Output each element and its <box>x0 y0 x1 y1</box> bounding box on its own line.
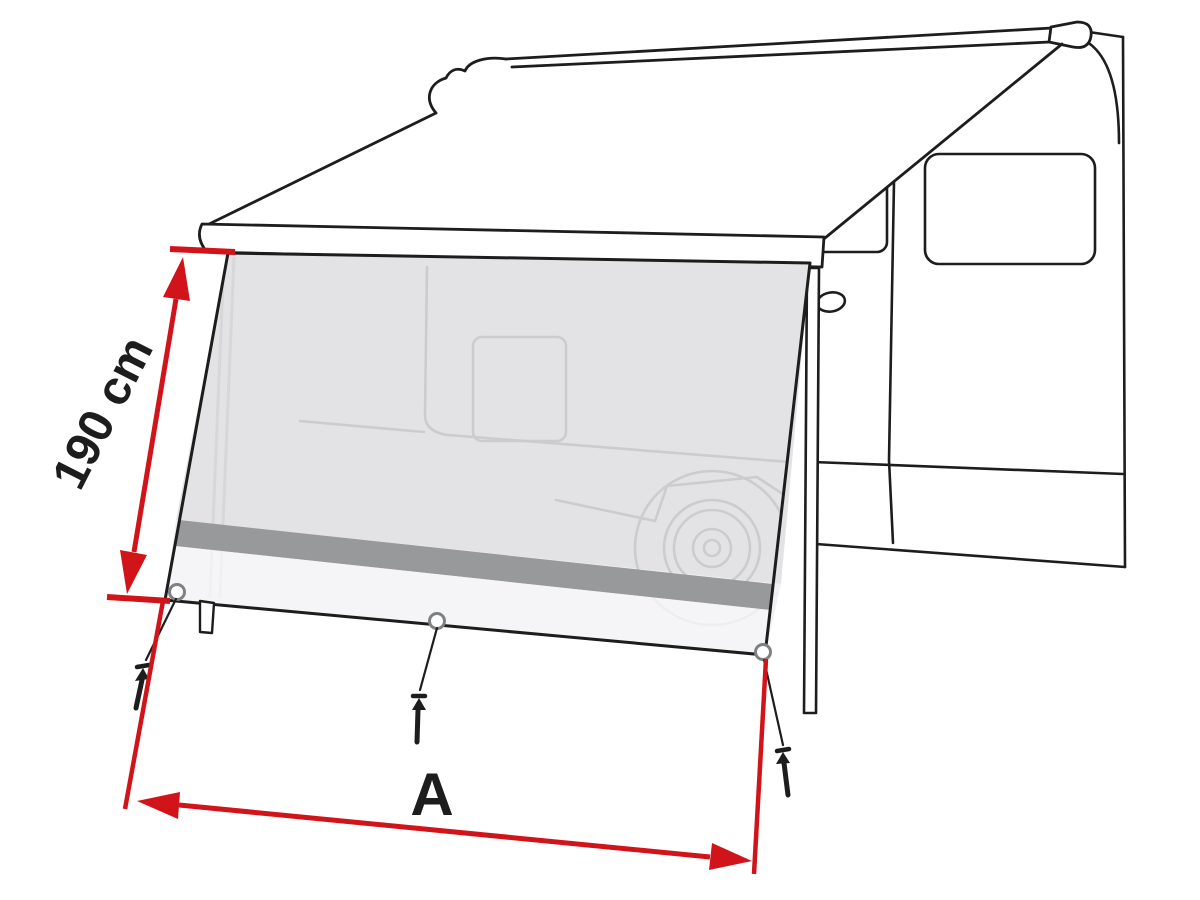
width-extension-line-right <box>754 659 766 874</box>
van-rear-corner-seam <box>1090 44 1119 143</box>
roller-end-cap <box>1049 22 1091 48</box>
guy-line-middle <box>420 628 437 690</box>
awning-diagram: 190 cm A <box>0 0 1200 900</box>
height-arrow-shaft <box>134 299 176 552</box>
van-right-edge <box>1123 37 1125 567</box>
grommet-middle <box>430 614 445 629</box>
width-arrowhead-left <box>137 792 180 819</box>
van-bottom-edge <box>816 544 1125 567</box>
height-arrowhead-top <box>163 257 190 301</box>
height-extension-tick-bottom <box>107 597 170 601</box>
grommet-left <box>170 585 185 600</box>
van-door-edge <box>889 182 894 543</box>
van-rear-window <box>925 154 1095 264</box>
grommet-right <box>756 645 771 660</box>
width-dimension-label: A <box>410 761 453 828</box>
peg-middle <box>412 696 426 742</box>
illustration-canvas: 190 cm A <box>0 0 1200 900</box>
van-skirt-line <box>813 462 1123 474</box>
peg-right <box>776 749 790 795</box>
awning-leg-right <box>804 268 819 713</box>
side-panel <box>165 253 827 660</box>
van-door-handle <box>816 290 847 314</box>
awning-leg-left-foot <box>200 601 214 633</box>
height-extension-tick-top <box>170 249 235 252</box>
height-arrowhead-bottom <box>120 550 147 594</box>
width-extension-line-left <box>125 601 163 809</box>
width-arrowhead-right <box>709 843 752 870</box>
